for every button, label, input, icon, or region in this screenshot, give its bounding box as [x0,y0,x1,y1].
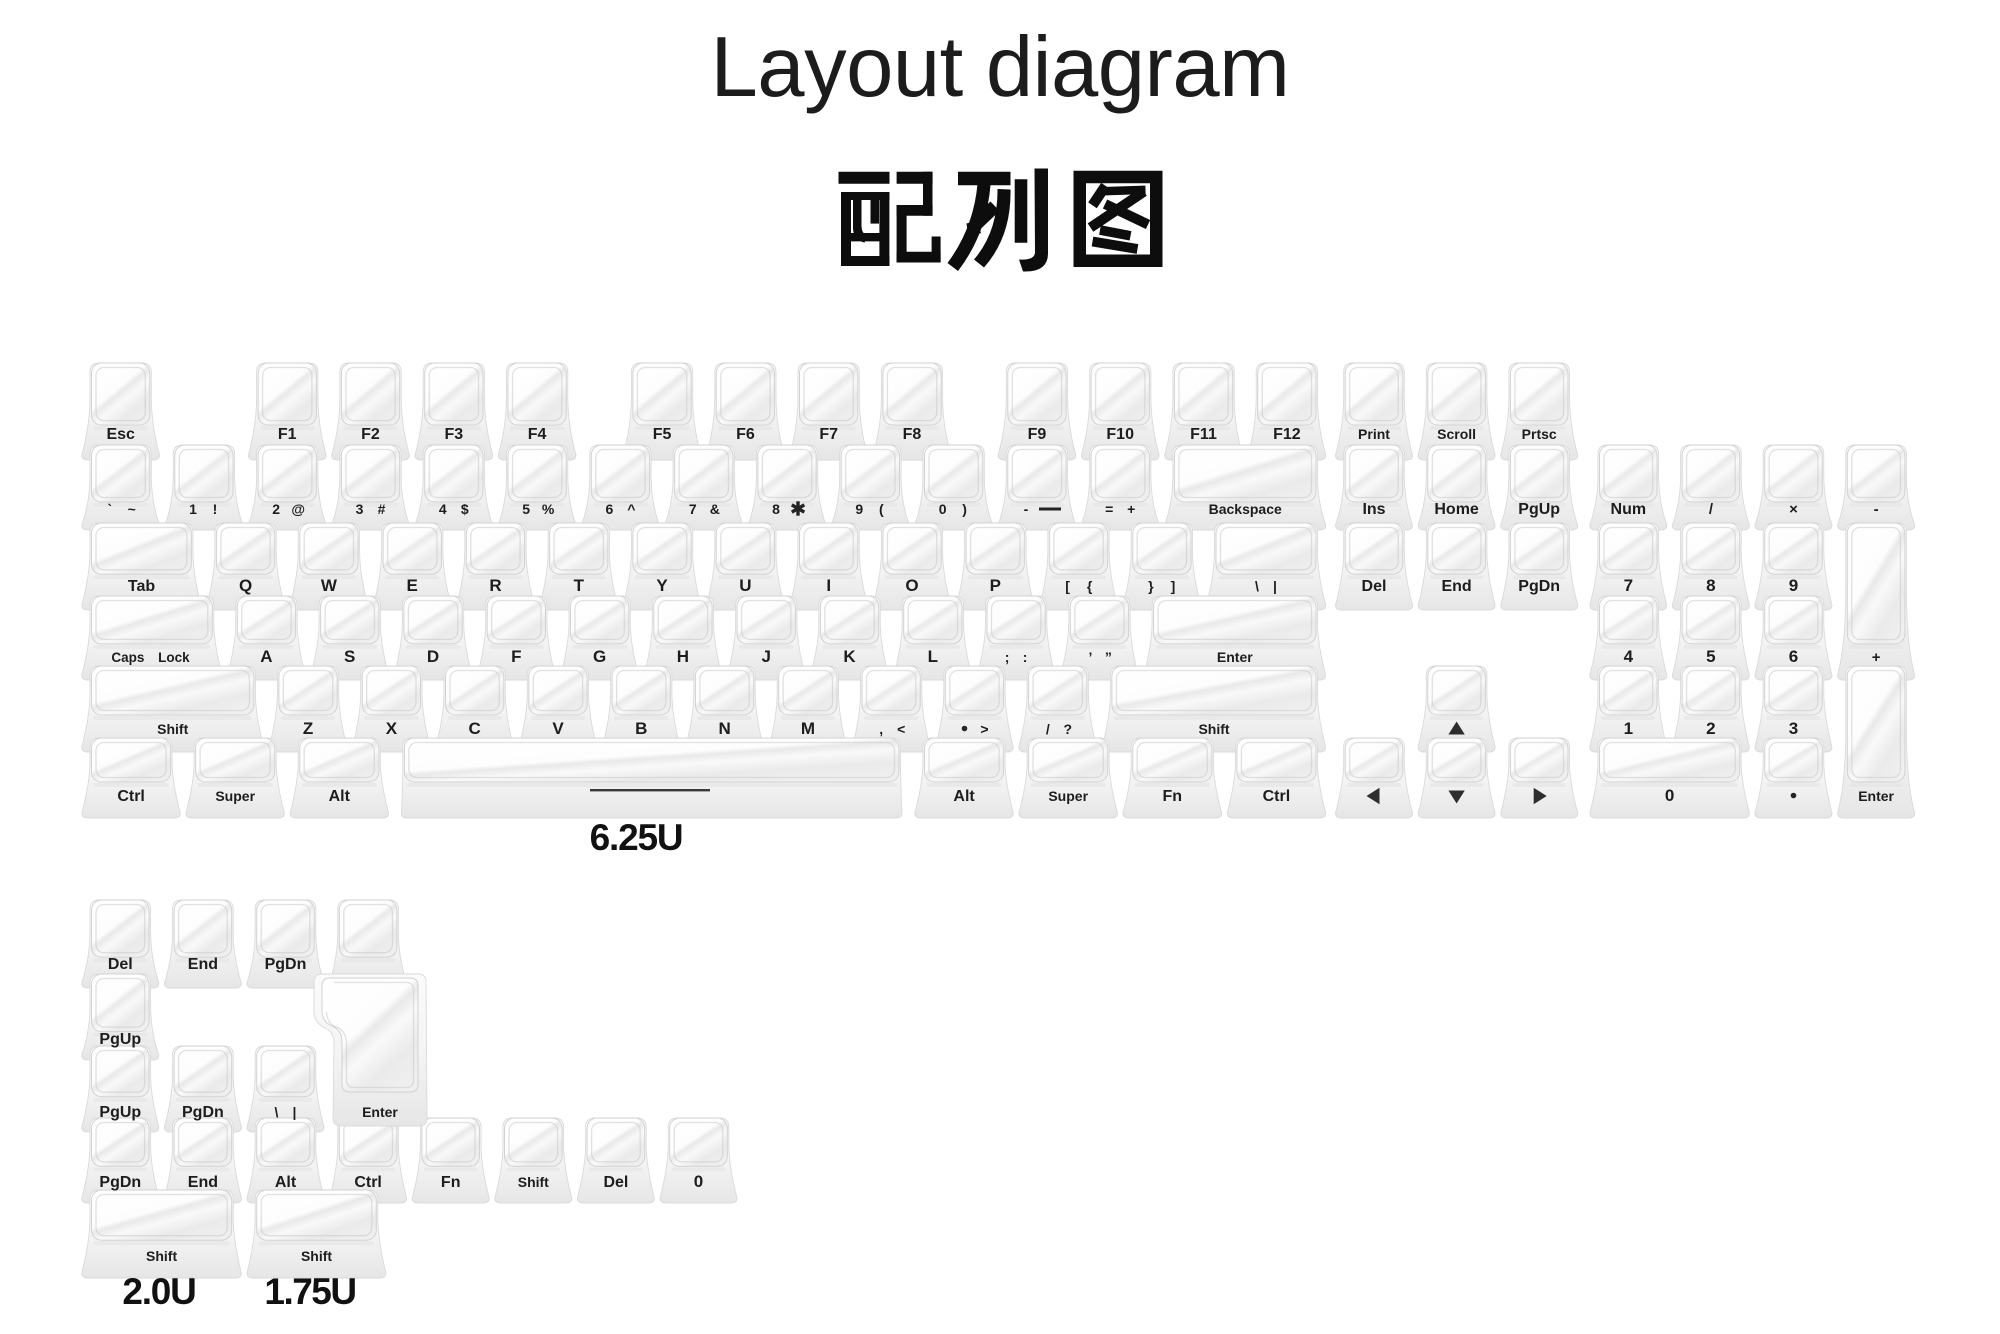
svg-text:\: \ [275,1104,279,1120]
svg-text:F5: F5 [653,426,672,443]
svg-text:PgUp: PgUp [99,1104,141,1121]
svg-text:5: 5 [1706,647,1715,666]
svg-text:F3: F3 [444,426,463,443]
svg-text:1: 1 [189,501,197,517]
svg-text:I: I [826,576,831,595]
svg-text:=: = [1105,501,1113,517]
svg-text:R: R [489,576,501,595]
svg-text:9: 9 [855,501,863,517]
svg-text:PgDn: PgDn [99,1174,141,1191]
svg-text:4: 4 [439,501,447,517]
svg-text:/: / [1046,721,1050,737]
svg-text:|: | [293,1104,297,1120]
svg-text:Shift: Shift [1198,721,1229,737]
svg-text:Alt: Alt [953,788,975,805]
svg-text:1.75U: 1.75U [264,1271,355,1312]
svg-text:V: V [552,719,564,738]
svg-text:3: 3 [1789,719,1798,738]
svg-text:#: # [378,501,386,517]
svg-text:End: End [1441,578,1471,595]
svg-text:2.0U: 2.0U [122,1271,195,1312]
svg-text:1: 1 [1624,719,1633,738]
svg-text:End: End [188,956,218,973]
svg-text:D: D [427,647,439,666]
svg-text:E: E [407,576,418,595]
svg-text:F12: F12 [1273,426,1301,443]
svg-text:~: ~ [128,501,136,517]
svg-text:Shift: Shift [146,1248,177,1264]
svg-text:J: J [761,647,770,666]
svg-text:]: ] [1171,578,1176,594]
svg-text:H: H [677,647,689,666]
svg-text:Z: Z [303,719,313,738]
svg-text:Alt: Alt [275,1174,297,1191]
svg-text:7: 7 [689,501,697,517]
svg-text:>: > [980,721,988,737]
svg-text:}: } [1148,578,1154,594]
svg-text:”: ” [1105,649,1112,665]
svg-text:F10: F10 [1106,426,1134,443]
svg-text:0: 0 [694,1172,703,1191]
svg-text:[: [ [1065,578,1070,594]
svg-text:M: M [801,719,815,738]
svg-text:-: - [1024,501,1029,517]
svg-text:PgUp: PgUp [1518,501,1560,518]
svg-text:{: { [1087,578,1093,594]
svg-text:-: - [1874,501,1879,518]
svg-text:U: U [739,576,751,595]
svg-text:PgUp: PgUp [99,1031,141,1048]
svg-text:F8: F8 [903,426,922,443]
svg-text:Enter: Enter [362,1104,398,1120]
svg-text:F2: F2 [361,426,380,443]
svg-text:O: O [905,576,918,595]
svg-text:2: 2 [272,501,280,517]
svg-text:?: ? [1064,721,1073,737]
svg-text:Del: Del [1362,578,1387,595]
svg-text:8: 8 [772,501,780,517]
svg-text:Del: Del [108,956,133,973]
svg-text:C: C [469,719,481,738]
svg-text:P: P [990,576,1001,595]
svg-text:<: < [897,721,905,737]
svg-text:Y: Y [656,576,668,595]
svg-text:Ctrl: Ctrl [354,1174,382,1191]
svg-text:4: 4 [1624,647,1634,666]
svg-text:;: ; [1005,649,1010,665]
svg-text:S: S [344,647,355,666]
svg-text:Enter: Enter [1858,788,1894,804]
svg-text:,: , [879,721,883,737]
svg-text:G: G [593,647,606,666]
svg-text:N: N [718,719,730,738]
svg-text:^: ^ [627,501,635,517]
svg-text::: : [1023,649,1028,665]
svg-text:8: 8 [1706,576,1715,595]
svg-text:’: ’ [1088,649,1092,665]
svg-text:Esc: Esc [106,426,135,443]
svg-text:Ins: Ins [1362,501,1385,518]
svg-text:Prtsc: Prtsc [1522,426,1557,442]
svg-text:Ctrl: Ctrl [117,788,145,805]
svg-text:Print: Print [1358,426,1390,442]
svg-text:Backspace: Backspace [1209,501,1282,517]
svg-text:PgDn: PgDn [1518,578,1560,595]
svg-text:F6: F6 [736,426,755,443]
svg-text:F9: F9 [1028,426,1047,443]
svg-text:\: \ [1255,578,1259,594]
svg-text:+: + [1872,649,1881,666]
svg-text:(: ( [879,501,884,517]
svg-text:End: End [188,1174,218,1191]
svg-text:&: & [710,501,720,517]
svg-text:Super: Super [1048,788,1088,804]
svg-text:L: L [928,647,938,666]
svg-text:9: 9 [1789,576,1798,595]
svg-text:@: @ [291,501,305,517]
svg-text:Super: Super [215,788,255,804]
svg-text:6: 6 [1789,647,1798,666]
svg-text:F: F [511,647,521,666]
svg-text:0: 0 [939,501,947,517]
svg-text:`: ` [107,501,112,517]
svg-text:+: + [1127,501,1135,517]
svg-text:K: K [843,647,856,666]
svg-text:PgDn: PgDn [182,1104,224,1121]
svg-text:Home: Home [1434,501,1479,518]
svg-text:Alt: Alt [329,788,351,805]
svg-text:): ) [962,501,967,517]
svg-text:F4: F4 [528,426,547,443]
svg-text:Q: Q [239,576,252,595]
svg-text:!: ! [213,501,218,517]
svg-text:×: × [1789,501,1798,518]
svg-text:Fn: Fn [441,1174,461,1191]
svg-text:Caps: Caps [111,650,144,665]
svg-text:A: A [260,647,272,666]
svg-text:5: 5 [522,501,530,517]
svg-text:7: 7 [1624,576,1633,595]
svg-text:Lock: Lock [158,650,190,665]
svg-text:F11: F11 [1190,426,1217,443]
svg-text:Shift: Shift [157,721,188,737]
svg-text:2: 2 [1706,719,1715,738]
svg-text:Scroll: Scroll [1437,426,1476,442]
svg-text:%: % [542,501,555,517]
svg-text:X: X [386,719,398,738]
svg-text:W: W [321,576,338,595]
svg-text:Del: Del [603,1174,628,1191]
svg-text:F7: F7 [819,426,838,443]
svg-text:Num: Num [1611,501,1647,518]
svg-text:|: | [1273,578,1277,594]
svg-text:Tab: Tab [128,578,155,595]
svg-text:Fn: Fn [1163,788,1183,805]
svg-text:Shift: Shift [518,1174,549,1190]
svg-text:T: T [574,576,585,595]
svg-text:Shift: Shift [301,1248,332,1264]
svg-text:F1: F1 [278,426,297,443]
svg-text:3: 3 [356,501,364,517]
svg-text:Enter: Enter [1217,649,1253,665]
svg-text:B: B [635,719,647,738]
svg-text:6.25U: 6.25U [590,817,683,858]
svg-text:$: $ [461,501,469,517]
svg-text:Ctrl: Ctrl [1263,788,1291,805]
svg-text:0: 0 [1665,786,1674,805]
svg-text:PgDn: PgDn [265,956,307,973]
svg-text:Layout diagram: Layout diagram [711,20,1290,115]
svg-text:6: 6 [606,501,614,517]
